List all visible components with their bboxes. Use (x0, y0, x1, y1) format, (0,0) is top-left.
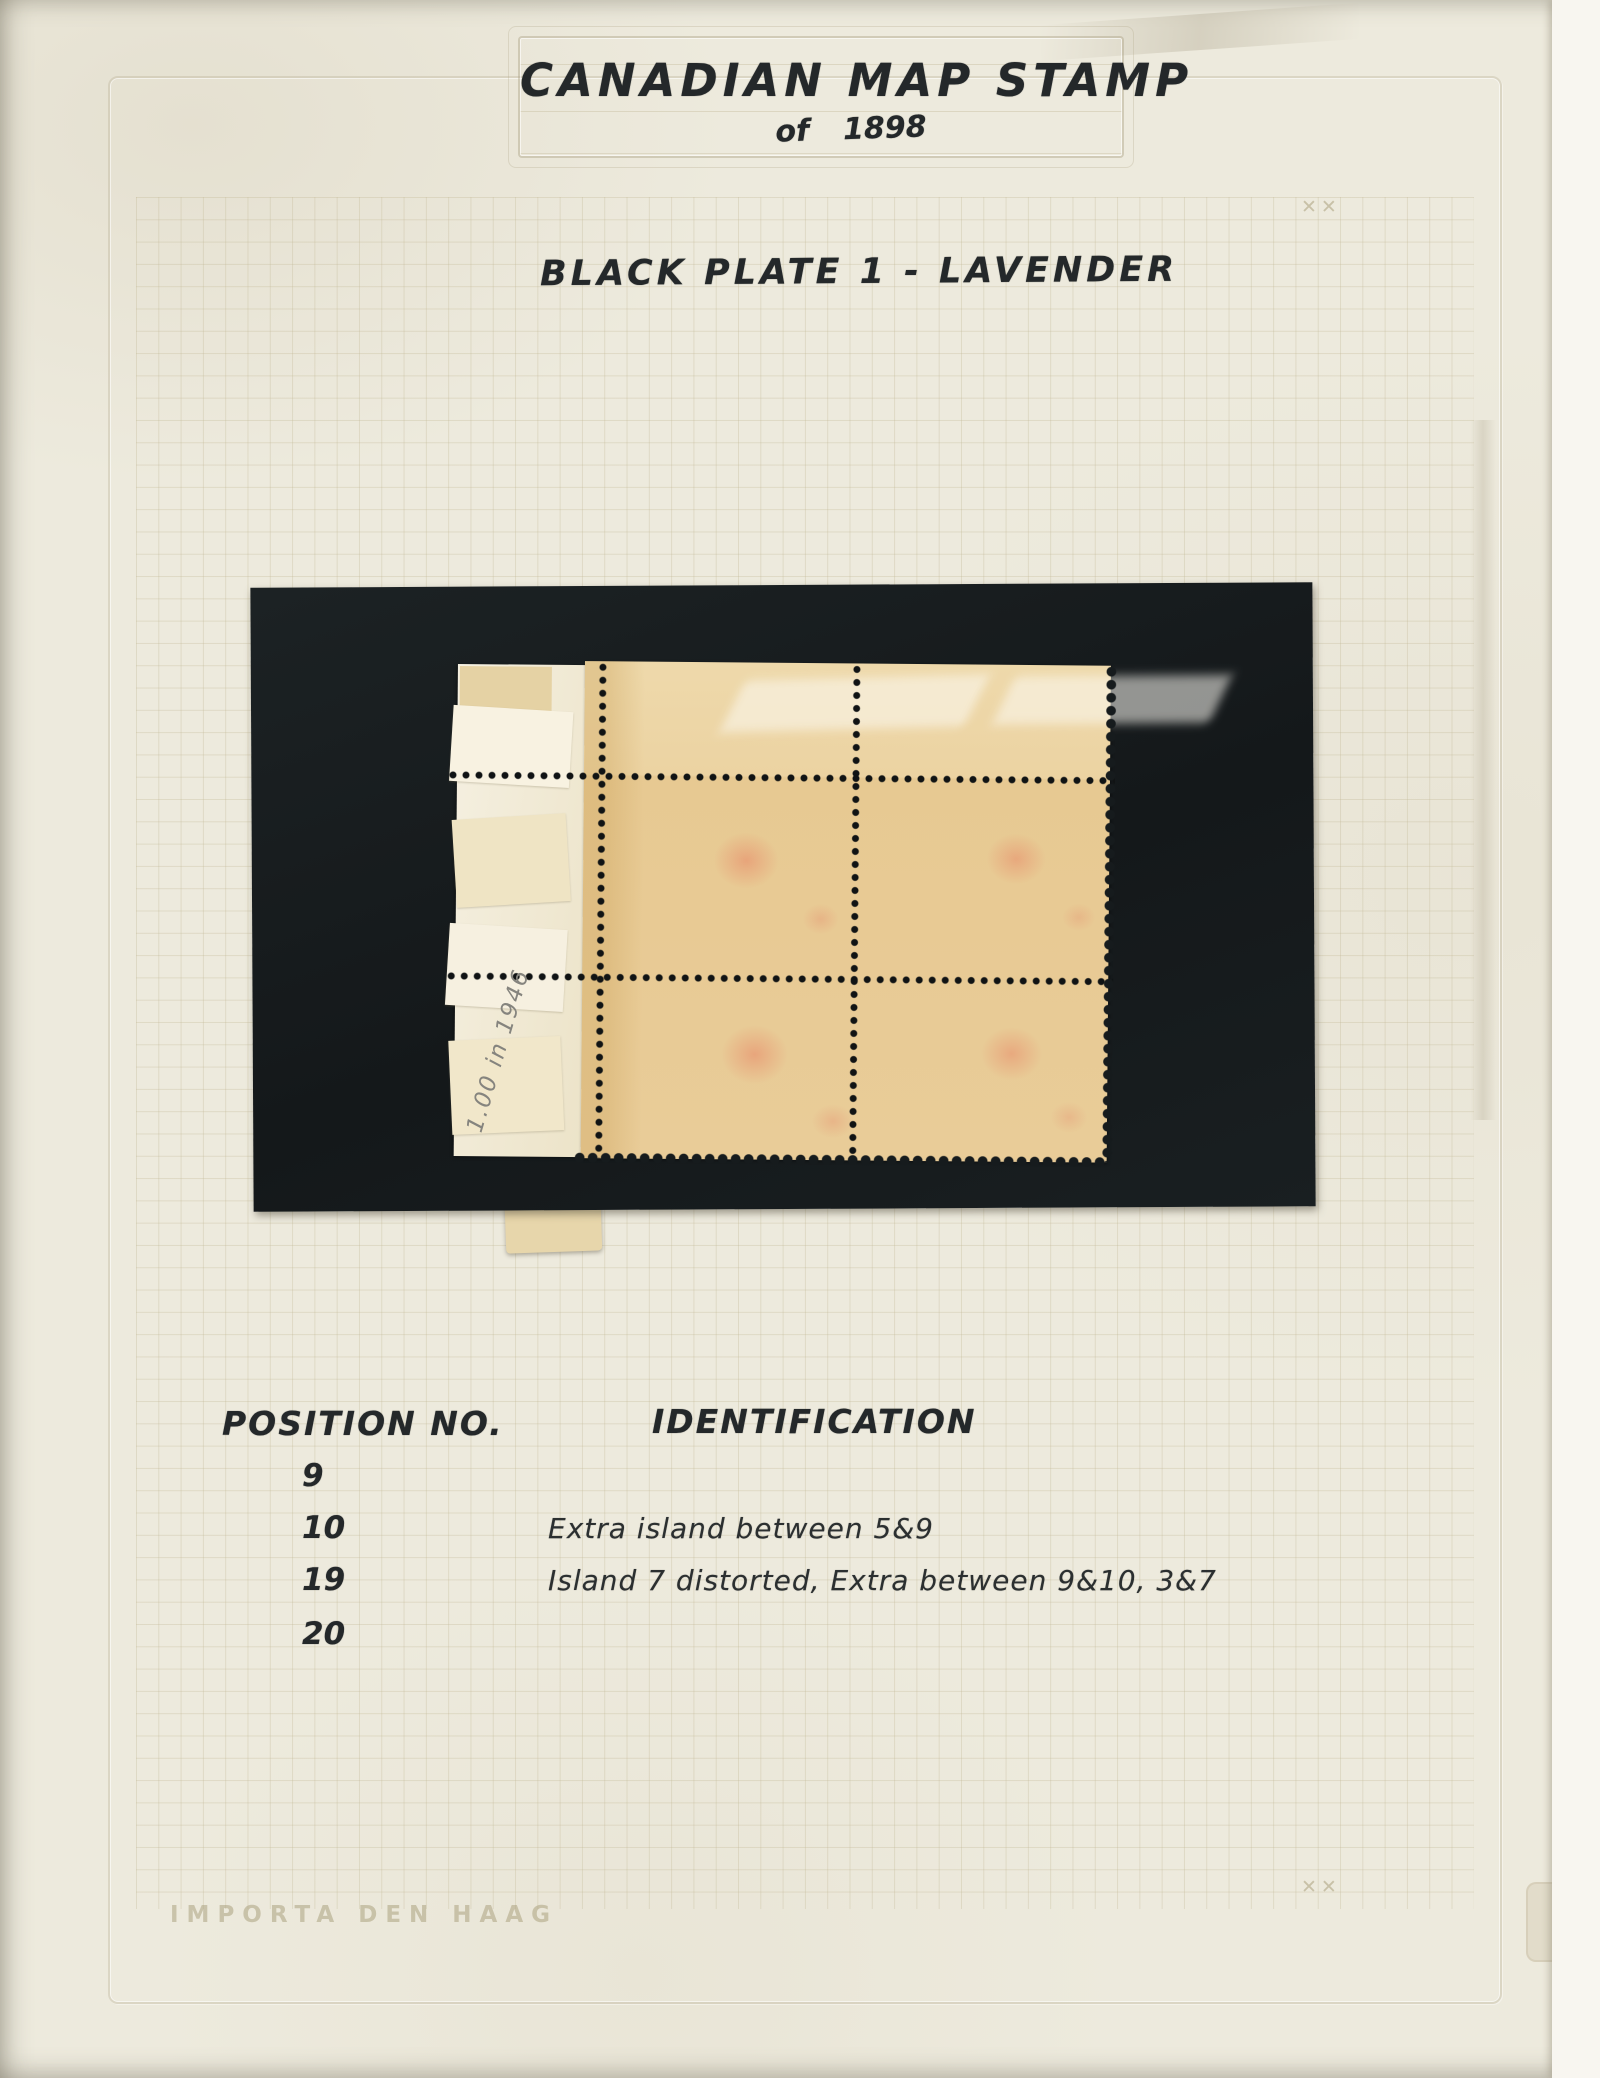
position-number: 20 (302, 1616, 548, 1652)
position-number: 9 (302, 1458, 548, 1494)
position-no-header: POSITION NO. (222, 1404, 504, 1443)
of-word: of (775, 113, 810, 149)
table-row: 10 Extra island between 5&9 (302, 1510, 934, 1546)
position-number: 19 (302, 1562, 548, 1598)
left-selvage (454, 664, 588, 1157)
scanner-edge-strip (1552, 0, 1600, 2078)
stamp-corner-block: 1.00 in 1946 (454, 660, 1114, 1166)
table-row: 20 (302, 1616, 548, 1652)
stamp-block-gum-side (581, 661, 1111, 1163)
paper-crease (1470, 420, 1496, 1120)
table-row: 9 (302, 1458, 548, 1494)
importa-watermark: IMPORTA DEN HAAG (170, 1902, 558, 1928)
plate-subtitle: BLACK PLATE 1 - LAVENDER (540, 250, 1178, 294)
title-year-line: of1898 (580, 103, 1123, 157)
identification-text: Island 7 distorted, Extra between 9&10, … (548, 1564, 1217, 1597)
identification-text: Extra island between 5&9 (548, 1512, 934, 1545)
hinge-remnant (452, 813, 571, 908)
title-box: CANADIAN MAP STAMP of1898 (518, 36, 1124, 158)
scanned-album-page: CANADIAN MAP STAMP of1898 BLACK PLATE 1 … (0, 0, 1600, 2078)
corner-register-marks-top: ✕✕ (1301, 196, 1341, 218)
position-number: 10 (302, 1510, 548, 1546)
page-title: CANADIAN MAP STAMP (520, 54, 1122, 107)
table-row: 19 Island 7 distorted, Extra between 9&1… (302, 1562, 1217, 1598)
year-text: 1898 (842, 109, 927, 147)
corner-register-marks-bottom: ✕✕ (1301, 1876, 1341, 1898)
identification-header: IDENTIFICATION (652, 1402, 977, 1441)
